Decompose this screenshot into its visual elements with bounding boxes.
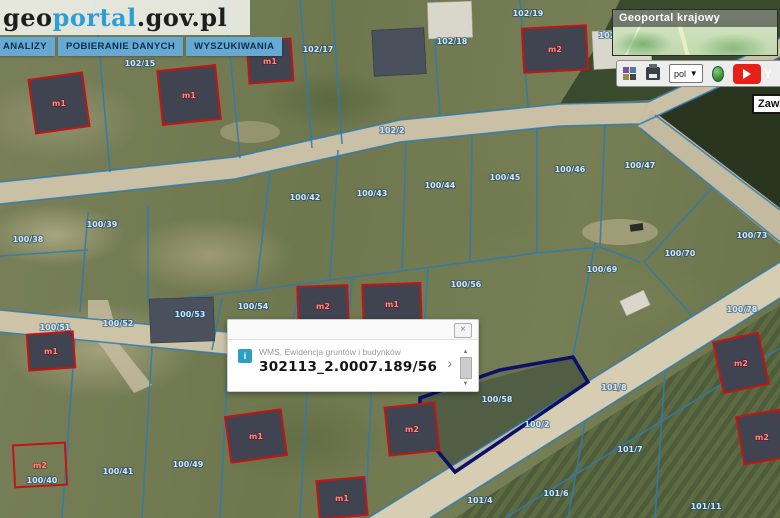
parcel-label: 102/2 (379, 126, 404, 135)
popup-scrollbar: ▲ ▼ (459, 349, 472, 387)
scroll-up-icon[interactable]: ▲ (463, 349, 469, 355)
parcel-label: 100/39 (87, 220, 118, 229)
building-label: m1 (385, 300, 399, 309)
parcel-label: 100/43 (357, 189, 388, 198)
parcel-label: 100/52 (103, 319, 134, 328)
feature-info-popup: × i WMS, Ewidencja gruntów i budynków 30… (227, 319, 479, 392)
info-icon: i (238, 349, 252, 363)
parcel-label: 101/8 (601, 383, 627, 392)
parcel-label: 102/17 (303, 45, 334, 54)
map-contents-label[interactable]: Zawa (752, 94, 780, 114)
menu-item-wyszukiwania[interactable]: WYSZUKIWANIA (186, 37, 282, 56)
main-menu: ANALIZY POBIERANIE DANYCH WYSZUKIWANIA (0, 37, 282, 56)
scroll-down-icon[interactable]: ▼ (463, 381, 469, 387)
site-logo[interactable]: geoportal.gov.pl (0, 0, 250, 35)
parcel-label: 100/69 (587, 265, 618, 274)
scrollbar-thumb[interactable] (460, 357, 472, 379)
menu-item-analizy[interactable]: ANALIZY (0, 37, 55, 56)
building-roof (427, 1, 472, 39)
parcel-label: 100/53 (175, 310, 206, 319)
parcel-label: 100/56 (451, 280, 482, 289)
parcel-label: 100/38 (13, 235, 44, 244)
logo-portal: portal (53, 3, 137, 32)
building-label: m1 (52, 99, 66, 108)
logo-text: geoportal.gov.pl (3, 3, 227, 32)
parcel-label: 100/47 (625, 161, 656, 170)
overview-title: Geoportal krajowy (613, 10, 777, 27)
building-label: m2 (755, 433, 769, 442)
popup-body: i WMS, Ewidencja gruntów i budynków 3021… (228, 340, 478, 387)
parcel-label: 100/42 (290, 193, 321, 202)
building-label: m1 (263, 57, 277, 66)
print-icon[interactable] (646, 67, 660, 80)
parcel-label: 100/49 (173, 460, 204, 469)
popup-feature-id: 302113_2.0007.189/56 (259, 359, 440, 375)
parcel-label: 100/41 (103, 467, 134, 476)
building-label: m2 (405, 425, 419, 434)
language-value: pol (674, 69, 686, 79)
menu-item-pobieranie-danych[interactable]: POBIERANIE DANYCH (58, 37, 183, 56)
building-label: m1 (249, 432, 263, 441)
building-label: m1 (44, 347, 58, 356)
building-label: m1 (335, 494, 349, 503)
youtube-label: Y (764, 67, 772, 81)
popup-text: WMS, Ewidencja gruntów i budynków 302113… (259, 347, 440, 375)
building-roof (372, 28, 426, 77)
building-label: m1 (182, 91, 196, 100)
building-label: m2 (33, 461, 47, 470)
parcel-label: 101/11 (691, 502, 722, 511)
parcel-label: 100/51 (40, 323, 71, 332)
popup-header: × (228, 320, 478, 340)
parcel-label: 100/73 (737, 231, 768, 240)
chevron-down-icon: ▼ (690, 69, 698, 78)
parcel-label: 100/70 (665, 249, 696, 258)
parcel-label: 102/19 (513, 9, 544, 18)
parcel-label: 102/18 (437, 37, 468, 46)
parcel-label: 100/45 (490, 173, 521, 182)
building-label: m2 (316, 302, 330, 311)
logo-geo: geo (3, 3, 53, 32)
popup-source-label: WMS, Ewidencja gruntów i budynków (259, 347, 440, 357)
parcel-label: 100/44 (425, 181, 456, 190)
map-toolbar: pol ▼ Y (616, 60, 780, 87)
parcel-label: 100/58 (482, 395, 513, 404)
chevron-right-icon[interactable]: › (447, 355, 452, 371)
logo-suffix: .gov.pl (137, 3, 227, 32)
parcel-label: 101/6 (543, 489, 569, 498)
parcel-label: 100/40 (27, 476, 58, 485)
building-label: m2 (548, 45, 562, 54)
parcel-label: 100/78 (727, 305, 758, 314)
parcel-label: 100/54 (238, 302, 269, 311)
youtube-link[interactable]: Y (733, 63, 779, 84)
parcel-label: 101/7 (617, 445, 642, 454)
geoportal-app: m1m1m1m2m2m1m1m2m1m2m1m2m2102/15102/1710… (0, 0, 780, 518)
parcel-label: 102/15 (125, 59, 156, 68)
building-label: m2 (734, 359, 748, 368)
status-globe-icon[interactable] (712, 66, 724, 82)
building-roof (149, 297, 214, 343)
youtube-icon (733, 64, 761, 84)
layers-icon[interactable] (623, 67, 637, 80)
overview-minimap[interactable]: Geoportal krajowy (612, 9, 778, 56)
building-roof (620, 290, 650, 315)
close-icon[interactable]: × (454, 323, 472, 338)
parcel-label: 101/4 (467, 496, 493, 505)
parcel-label: 100/2 (524, 420, 549, 429)
parcel-label: 100/46 (555, 165, 586, 174)
language-select[interactable]: pol ▼ (669, 64, 703, 83)
